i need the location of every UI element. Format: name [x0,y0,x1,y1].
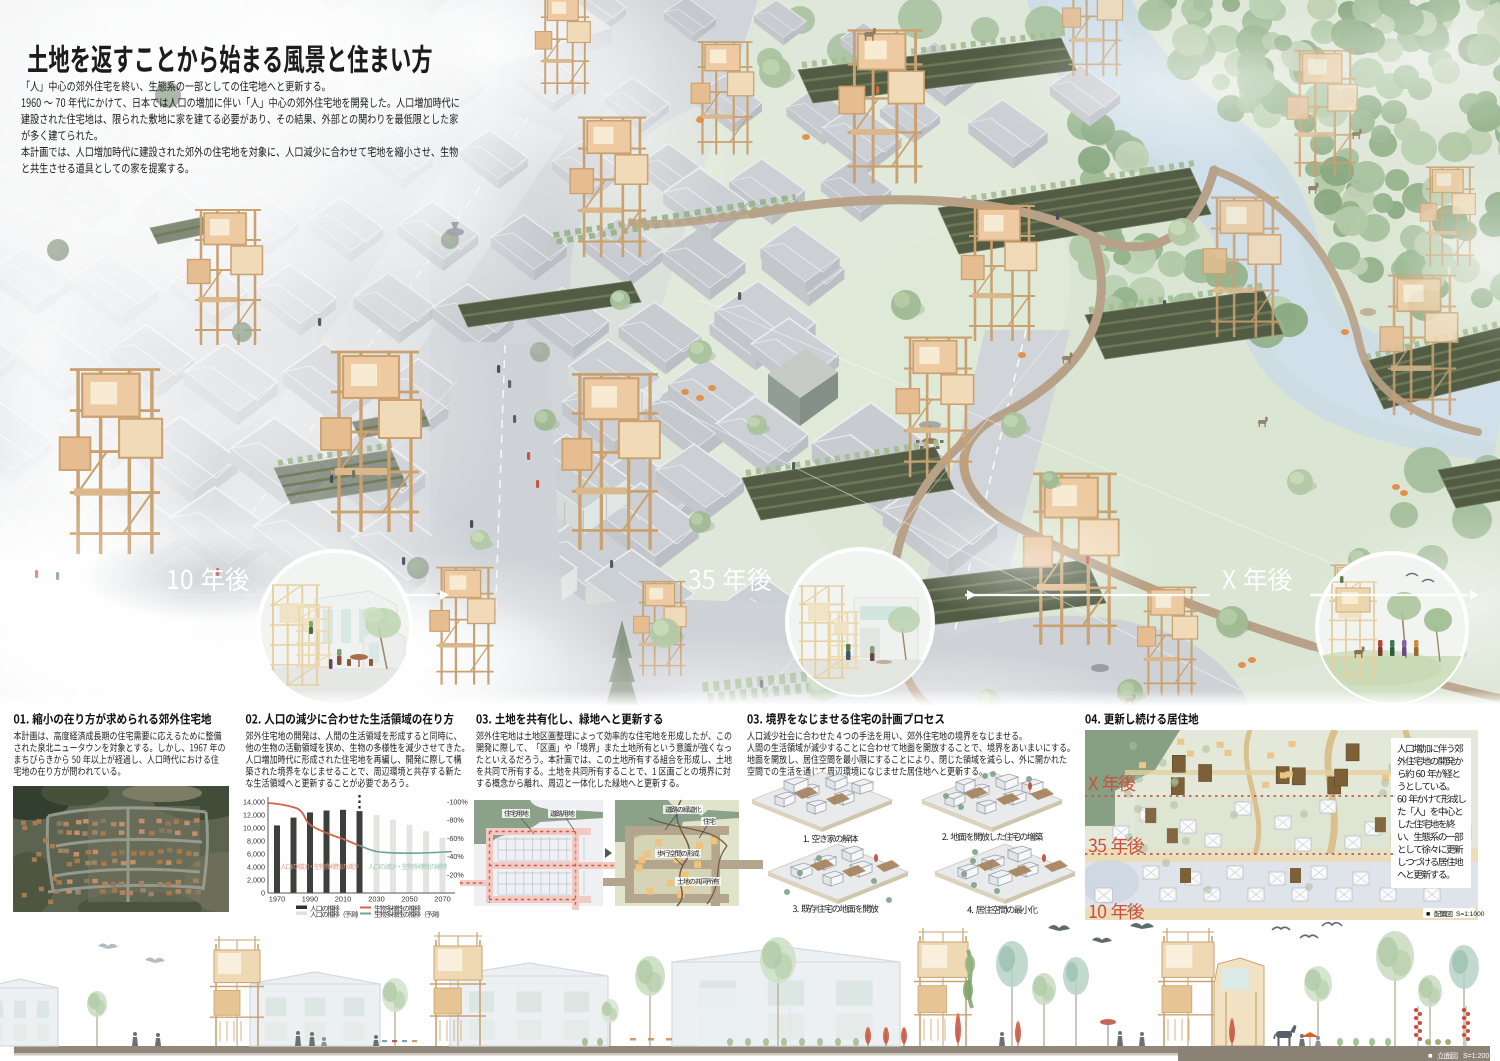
svg-text:-40%: -40% [447,852,464,861]
svg-text:2050: 2050 [401,895,417,904]
svg-text:-100%: -100% [447,798,468,807]
svg-text:1990: 1990 [302,895,318,904]
svg-text:14,000: 14,000 [243,798,265,807]
svg-text:0: 0 [261,889,265,898]
svg-text:2,000: 2,000 [247,876,265,885]
svg-text:-20%: -20% [447,870,464,879]
svg-text:2030: 2030 [368,895,384,904]
svg-text:8,000: 8,000 [247,837,265,846]
svg-text:S=1:200: S=1:200 [1463,1053,1489,1060]
svg-text:S=1:1000: S=1:1000 [1456,911,1485,918]
svg-text:-80%: -80% [447,816,464,825]
svg-text:■: ■ [1426,911,1430,918]
svg-text:4,000: 4,000 [247,863,265,872]
svg-text:12,000: 12,000 [243,811,265,820]
svg-text:10,000: 10,000 [243,824,265,833]
svg-text:2070: 2070 [434,895,450,904]
svg-text:1970: 1970 [269,895,285,904]
svg-text:■: ■ [1428,1051,1433,1060]
svg-text:2010: 2010 [335,895,351,904]
svg-text:6,000: 6,000 [247,850,265,859]
svg-text:-60%: -60% [447,834,464,843]
